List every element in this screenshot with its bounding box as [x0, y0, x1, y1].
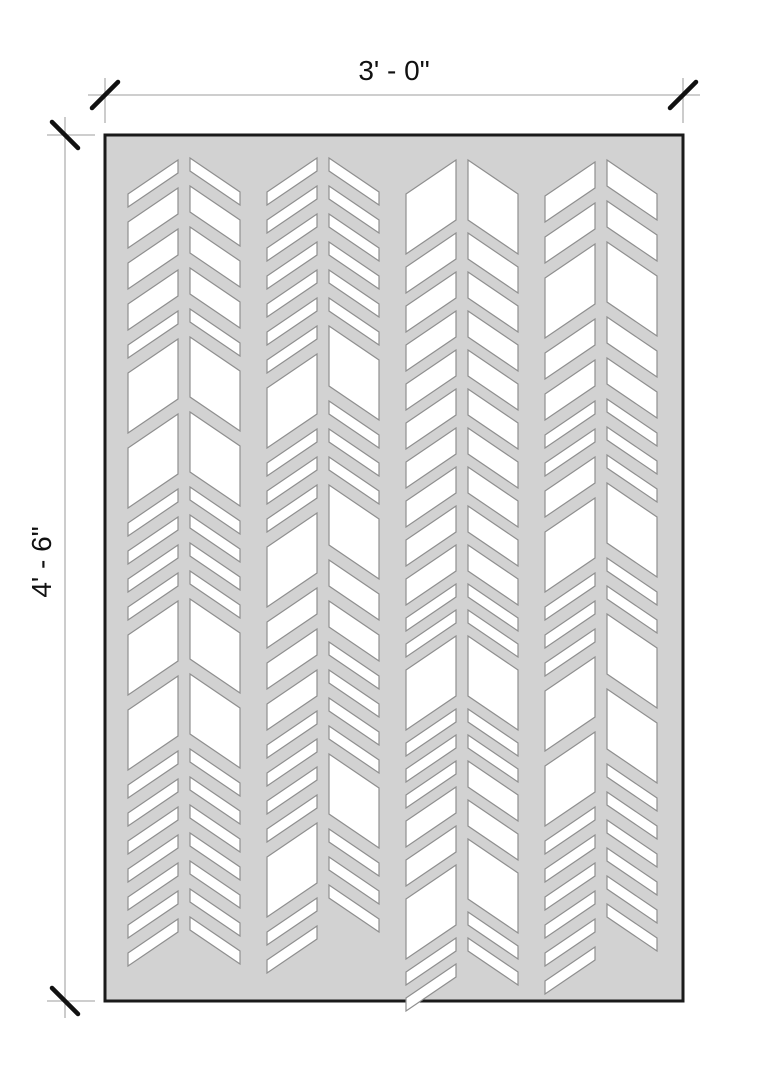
- height-dimension-label: 4' - 6": [26, 526, 58, 597]
- drawing-canvas: 3' - 0" 4' - 6": [0, 0, 768, 1085]
- width-dimension-label: 3' - 0": [358, 55, 429, 87]
- panel-elevation-drawing: [0, 0, 768, 1085]
